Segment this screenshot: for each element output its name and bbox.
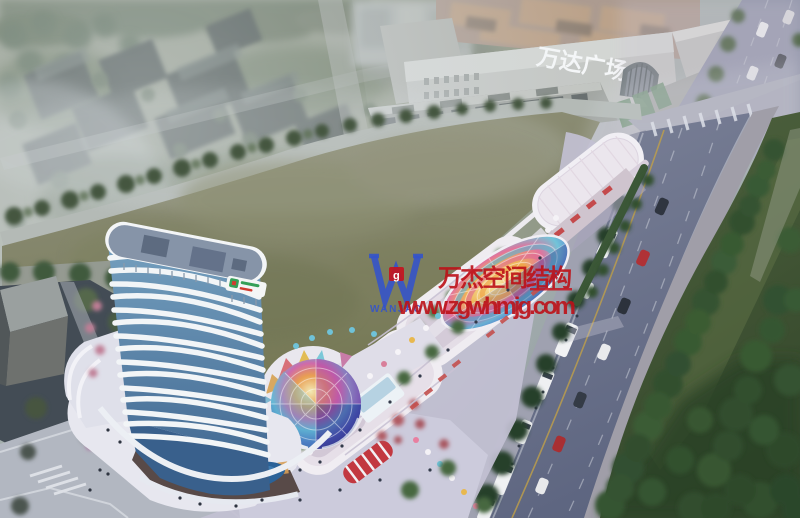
svg-text:万杰空间结构: 万杰空间结构 bbox=[438, 264, 572, 292]
svg-text:g: g bbox=[393, 270, 400, 282]
svg-text:www.zgwhmjg.com: www.zgwhmjg.com bbox=[397, 293, 576, 320]
